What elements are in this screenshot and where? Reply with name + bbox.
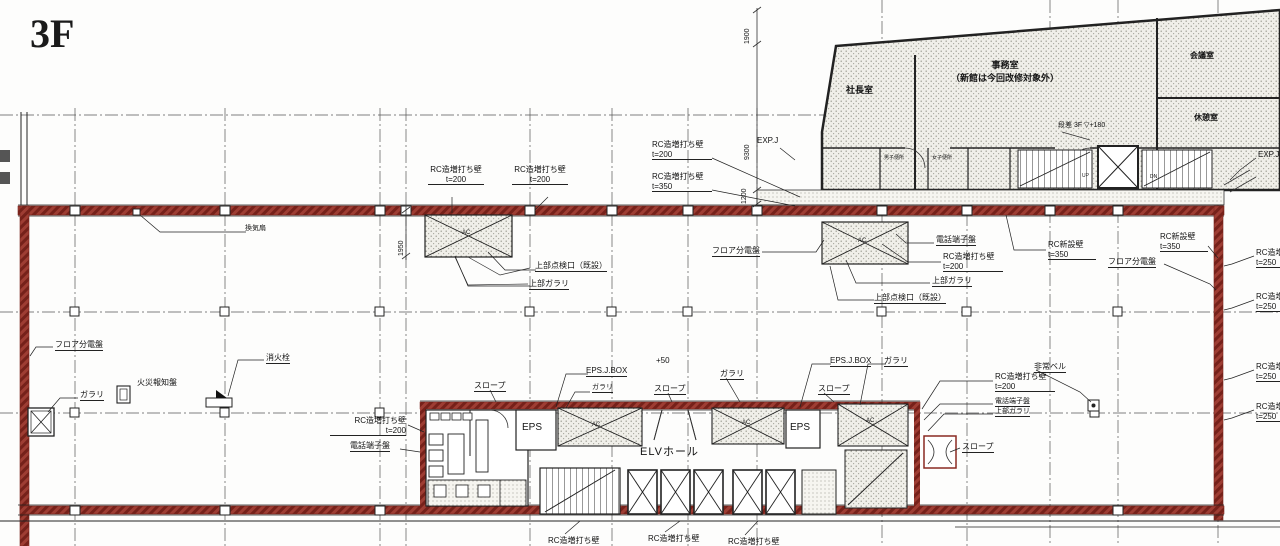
label-exp-joint-2: EXP.J [1258, 150, 1279, 160]
label-rc-new-t350-1: RC新設壁 t=350 [1048, 240, 1096, 260]
label-fire-hydrant: 消火栓 [266, 353, 290, 364]
label-elv-hall: ELVホール [640, 446, 699, 459]
label-slope-4: スロープ [962, 442, 994, 453]
label-rc-add-t200-3: RC造増打ち壁 t=200 [652, 140, 712, 160]
label-upper-louver-1: 上部ガラリ [529, 279, 569, 290]
dim-9300: 9300 [744, 144, 752, 160]
edge-mark-a [0, 150, 10, 162]
label-rc-add-t250-2: RC造増打ち壁 t=250 [1256, 292, 1280, 312]
label-phone-panel-3: 電話端子盤 [350, 441, 390, 452]
label-ac-2: AC [742, 420, 750, 427]
wall-top-red [18, 206, 1224, 215]
ceiling-ac-box-left [425, 215, 530, 285]
label-rc-add-bottom-2: RC造増打ち壁 [648, 534, 700, 544]
edge-mark-b [0, 172, 10, 184]
machine-room [802, 470, 836, 514]
dim-1950: 1950 [398, 240, 406, 256]
room-president: 社長室 [846, 83, 873, 96]
fire-alarm-symbol [117, 386, 130, 403]
dim-1900: 1900 [744, 28, 752, 44]
label-louver-4: ガラリ [884, 356, 908, 367]
hydrant-symbol [206, 390, 232, 407]
label-dn: DN [1150, 174, 1157, 180]
label-up: UP [1082, 173, 1089, 179]
label-rc-add-t250-3: RC造増打ち壁 t=250 [1256, 362, 1280, 382]
label-emergency-bell: 非常ベル [1034, 362, 1066, 373]
label-louver-1: ガラリ [80, 390, 104, 401]
plan-drawing [0, 0, 1280, 546]
label-rc-add-t350: RC造増打ち壁 t=350 [652, 172, 712, 192]
label-rc-add-t250-4: RC造増打ち壁 t=250 [1256, 402, 1280, 422]
label-ac-1: AC [592, 422, 600, 429]
label-slope-3: スロープ [818, 384, 850, 395]
label-eps-right: EPS [790, 422, 810, 434]
floor-plan-3f: 3F RC造増打ち壁 t=200 RC造増打ち壁 t=200 RC造増打ち壁 t… [0, 0, 1280, 546]
label-rc-add-t200-5: RC造増打ち壁 t=200 [995, 372, 1055, 392]
label-rc-new-t350-2: RC新設壁 t=350 [1160, 232, 1208, 252]
floor-title: 3F [30, 10, 74, 57]
toilet-block [426, 410, 528, 506]
label-upper-access-1: 上部点検口（既設） [535, 261, 607, 272]
label-floor-panel-3: フロア分電盤 [55, 340, 103, 351]
label-ac-4: AC [462, 230, 470, 237]
label-phone-panel-2: 電話端子盤 [995, 398, 1030, 407]
label-slope-2: スロープ [654, 384, 686, 395]
label-eps-left: EPS [522, 422, 542, 434]
room-meeting: 会議室 [1190, 50, 1214, 61]
label-floor-panel-2: フロア分電盤 [1108, 257, 1156, 268]
room-womens-toilet: 女子便所 [932, 155, 952, 161]
elevator-shafts [628, 470, 795, 514]
label-rc-add-t200-6: RC造増打ち壁 t=200 [330, 416, 406, 436]
label-upper-louver-3: 上部ガラリ [995, 408, 1030, 417]
label-rc-add-t200-1: RC造増打ち壁 t=200 [428, 165, 484, 185]
label-exp-joint-1: EXP.J [757, 136, 778, 146]
room-rest: 休憩室 [1194, 112, 1218, 123]
label-rc-add-t200-2: RC造増打ち壁 t=200 [512, 165, 568, 185]
wall-left-red [20, 206, 29, 546]
room-mens-toilet: 男子便所 [884, 155, 904, 161]
label-rc-add-t250-1: RC造増打ち壁 t=250 [1256, 248, 1280, 268]
louver-box-left [28, 408, 54, 436]
label-ac-5: AC [858, 238, 866, 245]
label-upper-louver-2: 上部ガラリ [932, 276, 972, 287]
label-floor-panel-1: フロア分電盤 [712, 246, 760, 257]
annex-building [822, 10, 1280, 190]
dim-1200: 1200 [741, 188, 749, 204]
label-eps-jbox-1: EPS.J.BOX [586, 366, 627, 377]
corridor-strip [757, 190, 1224, 205]
label-phone-panel-1: 電話端子盤 [936, 235, 976, 246]
wall-bottom-red [20, 506, 1224, 514]
vent-fan-symbol [133, 209, 140, 215]
label-ac-3: AC [866, 418, 874, 425]
label-louver-3: ガラリ [720, 369, 744, 380]
label-rc-add-t200-4: RC造増打ち壁 t=200 [943, 252, 1003, 272]
wall-right-red [1214, 206, 1223, 520]
label-fire-alarm: 火災報知盤 [137, 378, 177, 388]
label-plus50: +50 [656, 356, 670, 366]
label-rc-add-bottom-1: RC造増打ち壁 [548, 536, 600, 546]
room-office: 事務室 （新館は今回改修対象外） [930, 58, 1080, 84]
label-louver-2: ガラリ [592, 384, 613, 393]
label-eps-jbox-2: EPS.J.BOX [830, 356, 871, 367]
label-slope-1: スロープ [474, 381, 506, 392]
label-vent-fan: 換気扇 [245, 225, 266, 233]
label-upper-access-2: 上部点検口（既設） [874, 293, 946, 304]
label-rc-add-bottom-3: RC造増打ち壁 [728, 537, 780, 546]
label-step-note: 段差 3F ▽+180 [1058, 122, 1105, 130]
